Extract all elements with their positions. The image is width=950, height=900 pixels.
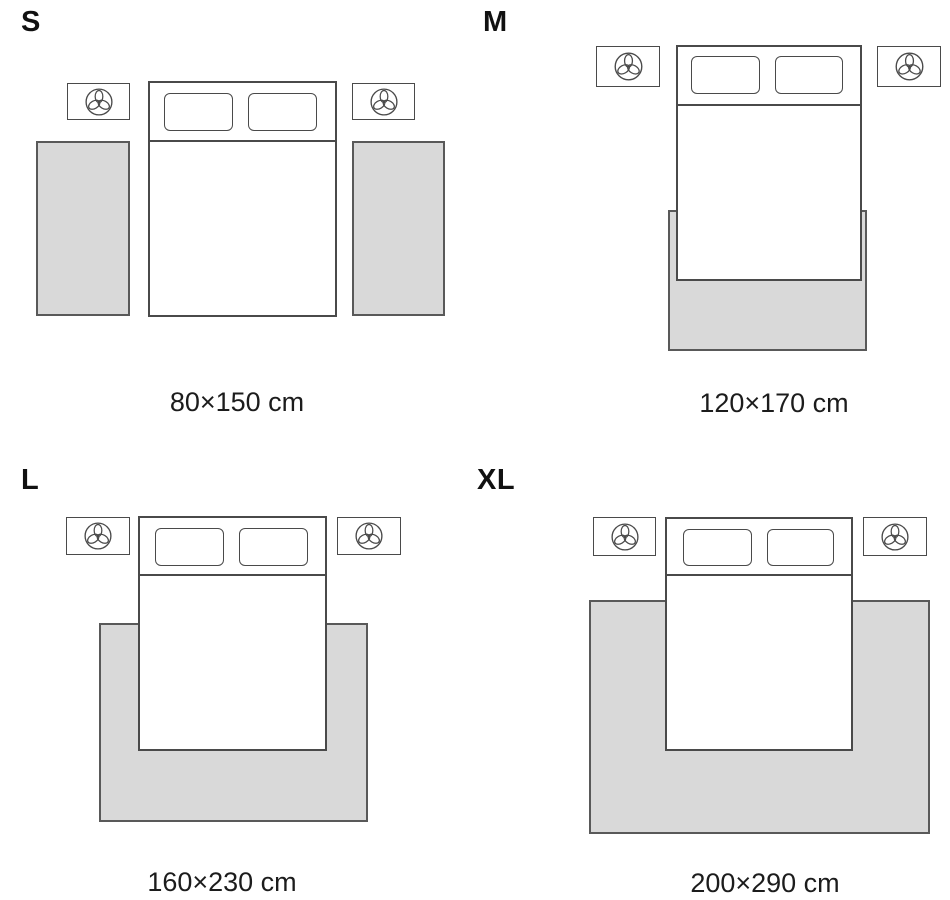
bed-headboard: [150, 83, 335, 142]
size-caption-xl: 200×290 cm: [655, 869, 875, 899]
bed-headboard: [140, 518, 325, 576]
size-label-m: M: [483, 7, 508, 39]
nightstand-right: [877, 46, 941, 87]
bed: [665, 517, 853, 751]
nightstand-right: [863, 517, 927, 556]
bed: [148, 81, 337, 317]
rug-left-runner: [36, 141, 130, 316]
pillow-left: [155, 528, 224, 566]
plant-icon: [879, 521, 911, 553]
bed: [676, 45, 862, 281]
rug-size-guide-diagram: S 80×150 cm M: [0, 0, 950, 900]
plant-icon: [612, 50, 645, 83]
nightstand-left: [596, 46, 660, 87]
nightstand-left: [66, 517, 130, 555]
bed-headboard: [667, 519, 851, 576]
nightstand-right: [352, 83, 415, 120]
pillow-left: [683, 529, 752, 566]
bed-headboard: [678, 47, 860, 106]
size-label-l: L: [21, 465, 39, 497]
pillow-right: [767, 529, 834, 566]
plant-icon: [609, 521, 641, 553]
pillow-right: [248, 93, 317, 131]
pillow-left: [164, 93, 233, 131]
bed: [138, 516, 327, 751]
size-caption-s: 80×150 cm: [137, 388, 337, 418]
nightstand-right: [337, 517, 401, 555]
size-caption-l: 160×230 cm: [112, 868, 332, 898]
plant-icon: [893, 50, 926, 83]
size-label-s: S: [21, 7, 41, 39]
pillow-right: [239, 528, 308, 566]
pillow-right: [775, 56, 843, 94]
nightstand-left: [67, 83, 130, 120]
pillow-left: [691, 56, 760, 94]
plant-icon: [83, 86, 115, 118]
plant-icon: [353, 520, 385, 552]
size-caption-m: 120×170 cm: [664, 389, 884, 419]
size-label-xl: XL: [477, 465, 515, 497]
plant-icon: [368, 86, 400, 118]
rug-right-runner: [352, 141, 445, 316]
plant-icon: [82, 520, 114, 552]
nightstand-left: [593, 517, 656, 556]
